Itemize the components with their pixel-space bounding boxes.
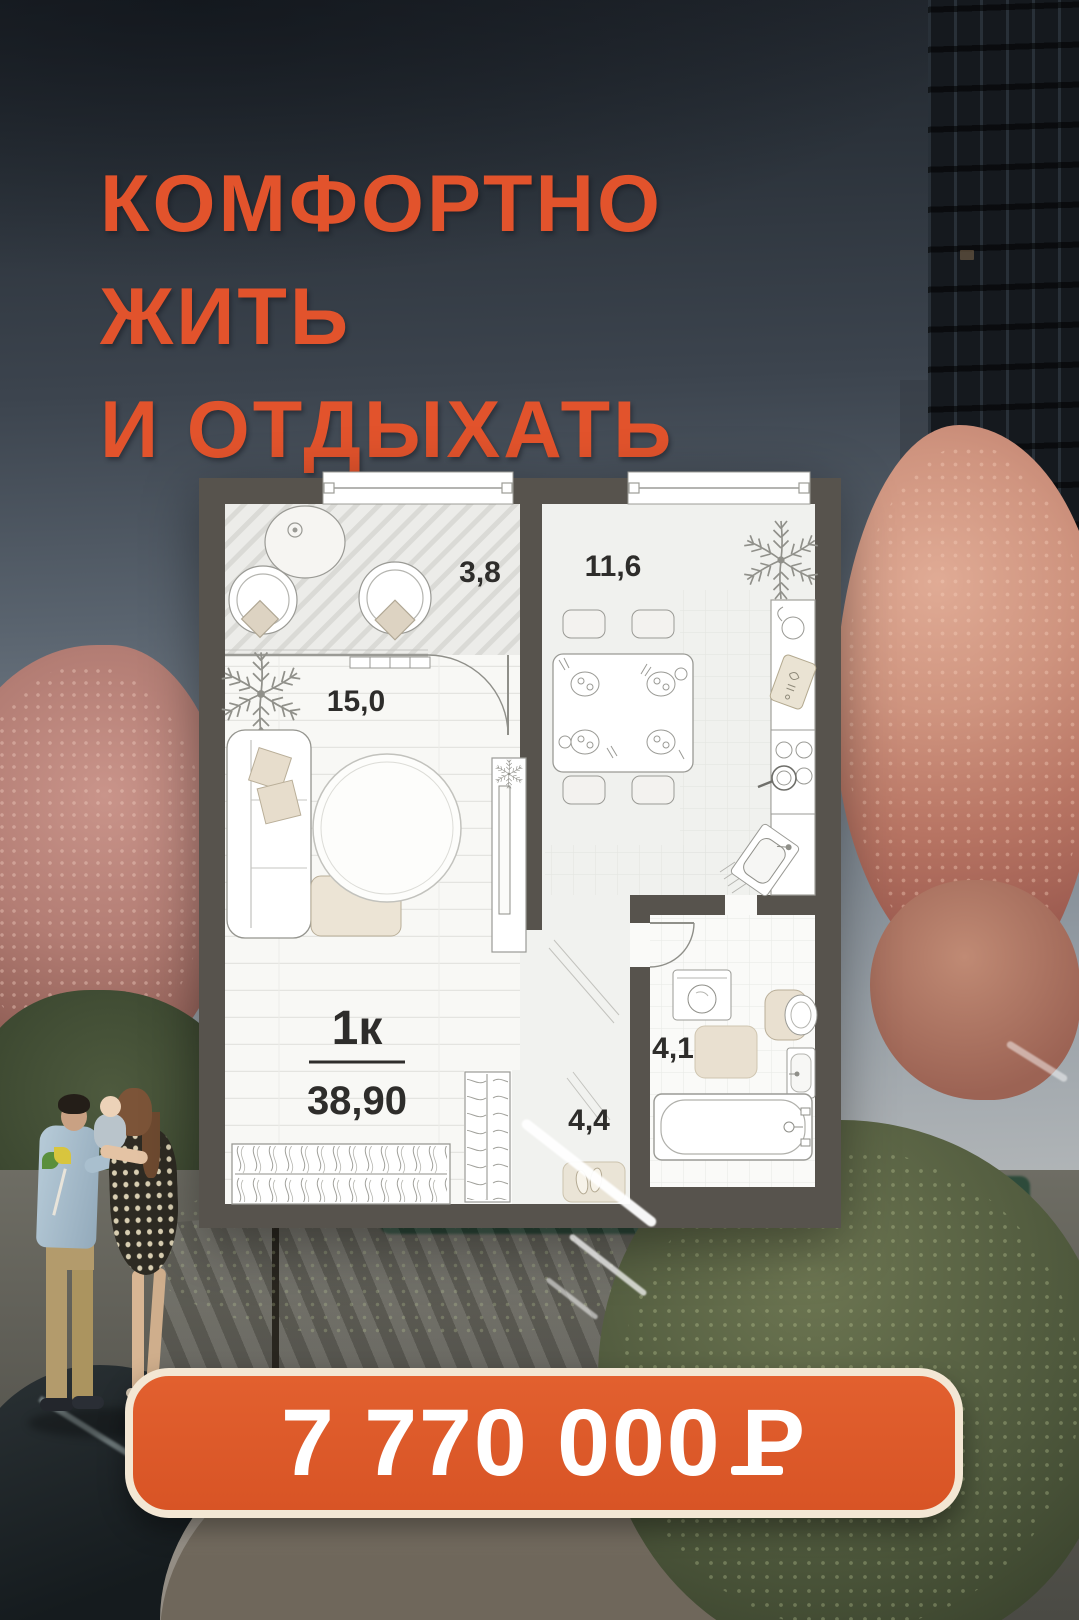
area-label-hallway: 4,4 — [568, 1104, 610, 1137]
area-label-bathroom: 4,1 — [652, 1032, 694, 1065]
tv-console — [492, 758, 526, 952]
bath-mat — [695, 1026, 757, 1078]
area-label-living: 15,0 — [327, 685, 385, 718]
woman-figure — [132, 1270, 144, 1392]
bathroom-sink — [787, 1048, 815, 1098]
wardrobe-hallway — [465, 1072, 510, 1202]
promo-banner: КОМФОРТНО ЖИТЬ И ОТДЫХАТЬ — [0, 0, 1079, 1620]
washing-machine — [673, 970, 731, 1020]
window-kitchen — [628, 472, 810, 504]
price-amount: 7 770 000 — [281, 1389, 722, 1498]
area-label-loggia: 3,8 — [459, 556, 501, 589]
wardrobe-long — [232, 1144, 450, 1204]
apartment-type-label: 1к — [332, 1002, 384, 1055]
toilet — [765, 990, 817, 1040]
man-figure — [46, 1265, 67, 1405]
floor-plan: 3,8 11,6 15,0 1к 38,90 4,1 4,4 — [199, 470, 841, 1228]
headline: КОМФОРТНО ЖИТЬ И ОТДЫХАТЬ — [100, 148, 860, 487]
round-rug — [313, 754, 461, 902]
ruble-sign: Р — [742, 1389, 807, 1498]
headline-line-2: ЖИТЬ — [100, 261, 860, 374]
bathtub — [654, 1094, 812, 1160]
total-area-label: 38,90 — [307, 1079, 407, 1123]
window-loggia — [323, 472, 513, 504]
headline-line-1: КОМФОРТНО — [100, 148, 860, 261]
lit-window — [960, 250, 974, 260]
price-badge: 7 770 000 Р — [125, 1368, 963, 1518]
area-label-kitchen: 11,6 — [585, 550, 642, 583]
